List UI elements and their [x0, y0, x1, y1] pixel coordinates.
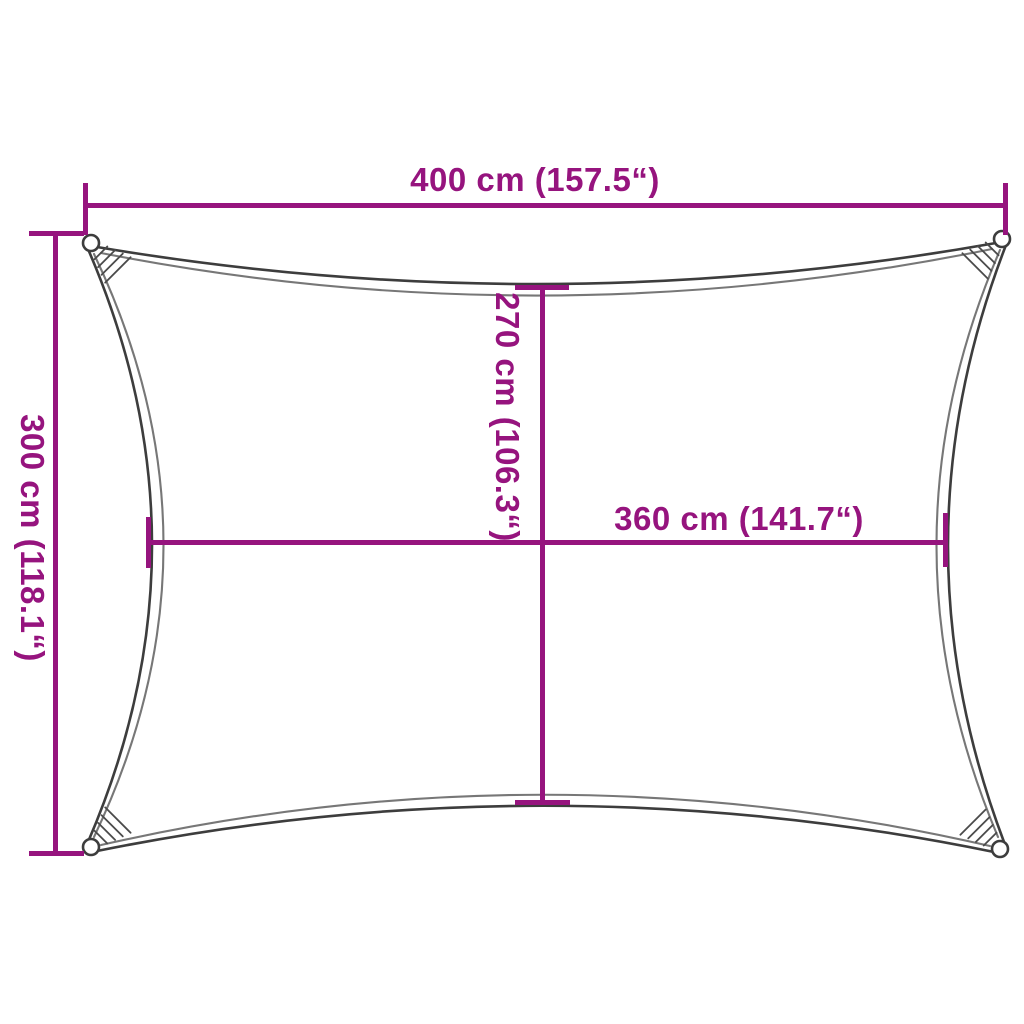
dim-label-height-inner: 270 cm (106.3“) — [485, 207, 529, 627]
dim-line-height-inner — [540, 287, 545, 802]
dimension-diagram: 400 cm (157.5“) 300 cm (118.1“) 270 cm (… — [0, 0, 1024, 1024]
sail-right-edge-outer — [948, 245, 1006, 842]
dim-tick-width-inner-left — [146, 517, 151, 568]
dim-label-width-top: 400 cm (157.5“) — [155, 158, 915, 202]
dim-tick-width-top-right — [1003, 183, 1008, 235]
dim-tick-height-left-top — [29, 231, 84, 236]
dim-tick-height-left-bottom — [29, 851, 84, 856]
dim-line-width-top — [85, 203, 1005, 208]
sail-bottom-edge-outer — [97, 806, 994, 852]
sail-left-edge-outer — [88, 249, 152, 842]
grommet-ring-top-left — [83, 235, 99, 251]
dim-tick-width-top-left — [83, 183, 88, 235]
dim-label-height-left: 300 cm (118.1“) — [10, 328, 54, 748]
grommet-ring-bottom-left — [83, 839, 99, 855]
dim-label-width-inner: 360 cm (141.7“) — [509, 497, 969, 541]
sail-top-edge-outer — [97, 243, 996, 284]
grommet-ring-bottom-right — [992, 841, 1008, 857]
dim-tick-height-inner-bottom — [515, 800, 570, 805]
